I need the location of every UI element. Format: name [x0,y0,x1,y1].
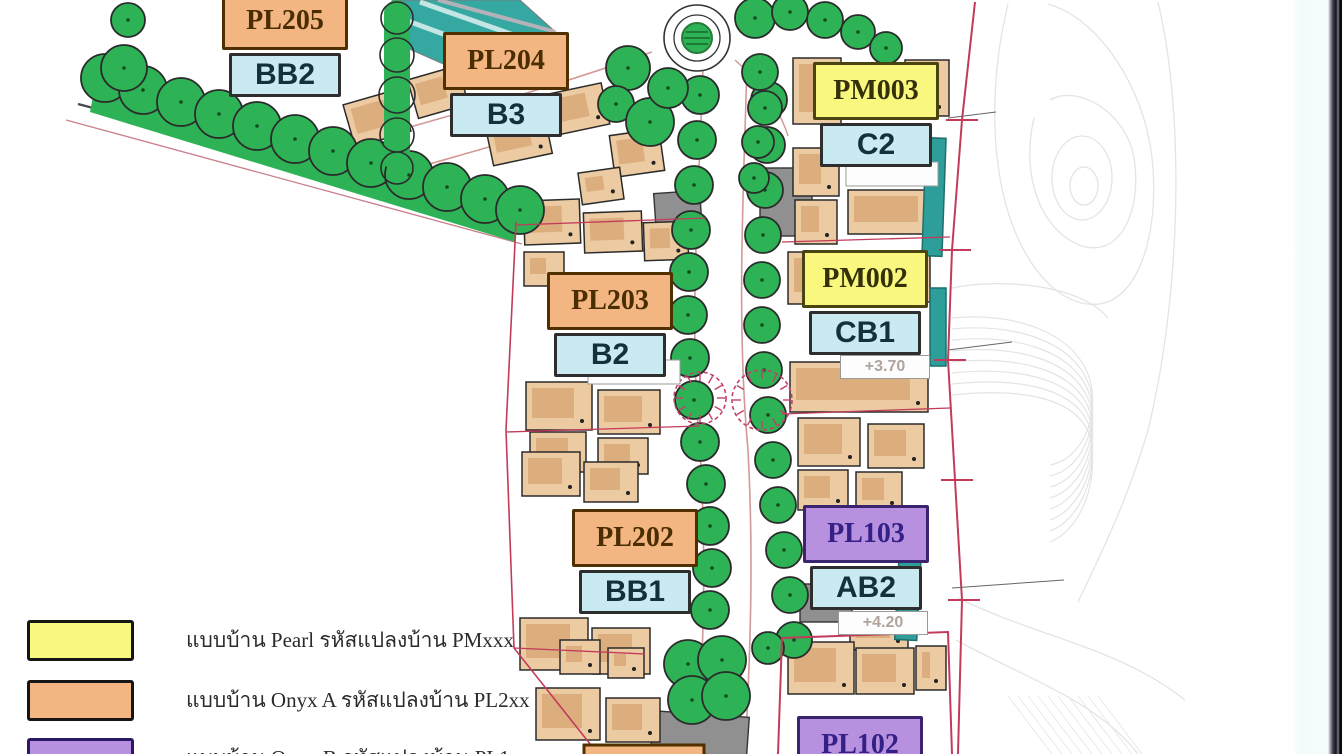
plot-label-PM002: PM002CB1 [802,250,928,355]
legend-label-onyx-b: แบบบ้าน Onyx B รหัสแปลงบ้าน PL1xx [186,742,531,754]
elevation-marker: +3.70 [840,355,930,379]
plot-label-PL205: PL205BB2 [222,0,348,97]
legend-row-pearl: แบบบ้าน Pearl รหัสแปลงบ้าน PMxxx [27,620,514,661]
contour-lines [952,2,1185,754]
legend-row-onyx-a: แบบบ้าน Onyx A รหัสแปลงบ้าน PL2xx [27,680,530,721]
plot-label-PM003: PM003C2 [813,62,939,167]
plot-code-box: PM003 [813,62,939,120]
plot-code-box: PL204 [443,32,569,90]
house-type-box: BB1 [579,570,691,614]
site-plan-stage: PL205BB2PL204B3PM003C2PL203B2PM002CB1PL2… [0,0,1342,754]
house-type-box: B2 [554,333,666,377]
plot-code-box: PL102 [797,716,923,754]
legend-label-pearl: แบบบ้าน Pearl รหัสแปลงบ้าน PMxxx [186,624,514,657]
legend-swatch-pearl [27,620,134,661]
plot-code-box: PM002 [802,250,928,308]
legend-label-onyx-a: แบบบ้าน Onyx A รหัสแปลงบ้าน PL2xx [186,684,530,717]
legend-swatch-onyx-b [27,738,134,754]
plot-label-PL202: PL202BB1 [572,509,698,614]
plot-code-box: PL103 [803,505,929,563]
plot-label-PL103: PL103AB2 [803,505,929,610]
legend-swatch-onyx-a [27,680,134,721]
plot-label-PL102: PL102 [797,716,923,754]
window-right-border [1292,0,1342,754]
plot-label-PL203: PL203B2 [547,272,673,377]
plot-label-PL204: PL204B3 [443,32,569,137]
house-type-box: CB1 [809,311,921,355]
house-type-box: AB2 [810,566,922,610]
partial-plot-label-bottom [584,745,704,754]
elevation-marker: +4.20 [838,611,928,635]
house-type-box: B3 [450,93,562,137]
plot-code-box: PL203 [547,272,673,330]
house-type-box: BB2 [229,53,341,97]
roundabout [664,5,730,71]
plot-code-box: PL202 [572,509,698,567]
legend-row-onyx-b: แบบบ้าน Onyx B รหัสแปลงบ้าน PL1xx [27,738,531,754]
house-type-box: C2 [820,123,932,167]
plot-code-box: PL205 [222,0,348,50]
